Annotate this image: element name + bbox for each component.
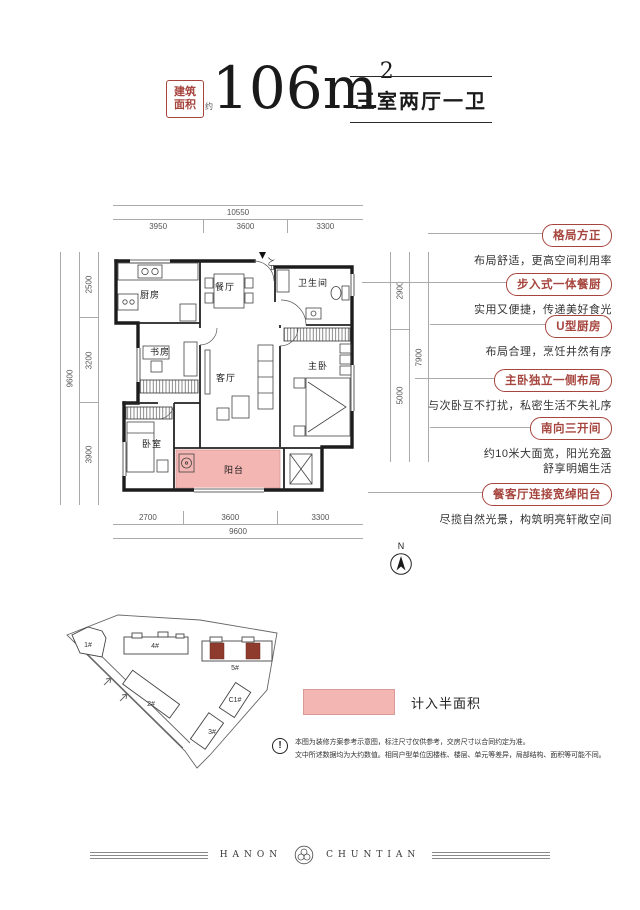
layout-title: 三室两厅一卫 xyxy=(350,76,492,123)
callout-3: U型厨房 布局合理，烹饪井然有序 xyxy=(486,315,613,360)
callout-5: 南向三开间 约10米大面宽，阳光充盈 舒享明媚生活 xyxy=(484,417,612,477)
siteplan: 1# 4# 5# 2# C1# 3# xyxy=(50,605,295,800)
brand-logo-icon xyxy=(294,845,314,865)
footer: HANON CHUNTIAN xyxy=(90,845,550,865)
callout-5-desc2: 舒享明媚生活 xyxy=(484,462,612,477)
room-label-study: 书房 xyxy=(150,346,170,357)
dim-bottom-seg3: 3300 xyxy=(277,511,363,524)
callout-4-pill: 主卧独立一侧布局 xyxy=(494,369,612,392)
building-label-2: 2# xyxy=(147,701,155,708)
building-label-4: 4# xyxy=(151,643,159,650)
dim-bottom-total: 9600 xyxy=(113,525,363,538)
dim-right: 2900 5000 7900 xyxy=(390,252,429,462)
building-area-badge: 建筑 面积 xyxy=(166,80,204,118)
dim-right-seg2: 5000 xyxy=(395,387,404,405)
brand-left: HANON xyxy=(220,850,282,860)
compass-n-label: N xyxy=(388,541,414,551)
room-label-dining: 餐厅 xyxy=(215,281,235,292)
dim-left-seg3: 3900 xyxy=(84,445,93,463)
dim-bottom-seg1: 2700 xyxy=(113,511,183,524)
callout-6-desc: 尽揽自然光景，构筑明亮轩敞空间 xyxy=(440,513,613,528)
legend-swatch xyxy=(303,689,395,715)
dim-left-seg2: 3200 xyxy=(84,351,93,369)
wardrobes xyxy=(126,328,350,419)
disclaimer-line1: 本图为装修方案参考示意图，标注尺寸仅供参考，交房尺寸以合同约定为准。 xyxy=(295,736,617,749)
callout-1-title: 格局方正 xyxy=(553,230,601,242)
callout-2: 步入式一体餐厨 实用又便捷，传递美好食光 xyxy=(474,273,612,318)
legend: 计入半面积 xyxy=(303,689,481,715)
room-label-entry: 入户 xyxy=(267,257,276,271)
callout-4-title: 主卧独立一侧布局 xyxy=(505,375,601,387)
dim-right-seg1: 2900 xyxy=(395,281,404,299)
exclamation-icon: ! xyxy=(272,738,288,754)
legend-label: 计入半面积 xyxy=(411,693,481,712)
area-badge-line1: 建筑 xyxy=(174,86,196,99)
page: 建筑 面积 约 106m2 三室两厅一卫 10550 3950 3600 330… xyxy=(0,0,640,910)
dim-right-total: 7900 xyxy=(414,348,423,366)
building-label-1: 1# xyxy=(84,642,92,649)
room-label-bath: 卫生间 xyxy=(298,277,328,288)
callout-5-title: 南向三开间 xyxy=(541,423,601,435)
north-compass: N xyxy=(388,541,414,581)
dim-left-seg1: 2500 xyxy=(84,276,93,294)
dim-top-seg2: 3600 xyxy=(203,220,286,233)
compass-icon xyxy=(389,552,413,576)
entry-arrow-icon xyxy=(259,252,266,259)
callout-4: 主卧独立一侧布局 与次卧互不打扰，私密生活不失礼序 xyxy=(428,369,612,414)
footer-rule-left xyxy=(90,852,208,859)
callout-4-desc: 与次卧互不打扰，私密生活不失礼序 xyxy=(428,399,612,414)
callout-1: 格局方正 布局舒适，更高空间利用率 xyxy=(474,224,612,269)
siteplan-buildings xyxy=(72,627,272,749)
room-label-balcony: 阳台 xyxy=(224,464,244,475)
callout-5-desc: 约10米大面宽，阳光充盈 xyxy=(484,447,612,462)
dim-bottom-seg2: 3600 xyxy=(183,511,277,524)
callout-2-pill: 步入式一体餐厨 xyxy=(506,273,612,296)
room-label-master: 主卧 xyxy=(308,360,328,371)
callout-5-pill: 南向三开间 xyxy=(530,417,612,440)
callout-1-desc: 布局舒适，更高空间利用率 xyxy=(474,254,612,269)
building-label-3: 3# xyxy=(208,729,216,736)
disclaimer-line2: 文中所述数据均为大约数值。相同户型单位因楼栋、楼层、单元等差异，局部结构、面积等… xyxy=(295,749,617,762)
dim-top: 10550 3950 3600 3300 xyxy=(113,205,363,233)
room-label-bedroom: 卧室 xyxy=(142,438,162,449)
room-labels: 厨房 餐厅 入户 卫生间 书房 客厅 主卧 卧室 阳台 xyxy=(140,257,328,475)
area-badge-line2: 面积 xyxy=(174,99,196,112)
room-label-kitchen: 厨房 xyxy=(140,289,160,300)
dim-left-total: 9600 xyxy=(65,370,74,388)
dim-top-seg3: 3300 xyxy=(287,220,363,233)
callout-6-pill: 餐客厅连接宽绰阳台 xyxy=(482,483,612,506)
callout-3-title: U型厨房 xyxy=(556,321,601,333)
room-label-living: 客厅 xyxy=(216,372,236,383)
building-label-5: 5# xyxy=(231,665,239,672)
callout-6: 餐客厅连接宽绰阳台 尽揽自然光景，构筑明亮轩敞空间 xyxy=(440,483,613,528)
disclaimer: ! 本图为装修方案参考示意图，标注尺寸仅供参考，交房尺寸以合同约定为准。 文中所… xyxy=(272,736,617,762)
dim-left: 9600 2500 3200 3900 xyxy=(60,252,99,505)
dim-top-total: 10550 xyxy=(113,206,363,219)
brand-right: CHUNTIAN xyxy=(326,850,420,860)
callout-1-pill: 格局方正 xyxy=(542,224,612,247)
callout-3-desc: 布局合理，烹饪井然有序 xyxy=(486,345,613,360)
floorplan: 厨房 餐厅 入户 卫生间 书房 客厅 主卧 卧室 阳台 xyxy=(110,250,364,508)
building-label-c1: C1# xyxy=(229,697,242,704)
dim-bottom: 2700 3600 3300 9600 xyxy=(113,511,363,539)
callout-2-title: 步入式一体餐厨 xyxy=(517,279,601,291)
callout-3-pill: U型厨房 xyxy=(545,315,612,338)
footer-rule-right xyxy=(432,852,550,859)
dim-top-seg1: 3950 xyxy=(113,220,203,233)
callout-6-title: 餐客厅连接宽绰阳台 xyxy=(493,489,601,501)
